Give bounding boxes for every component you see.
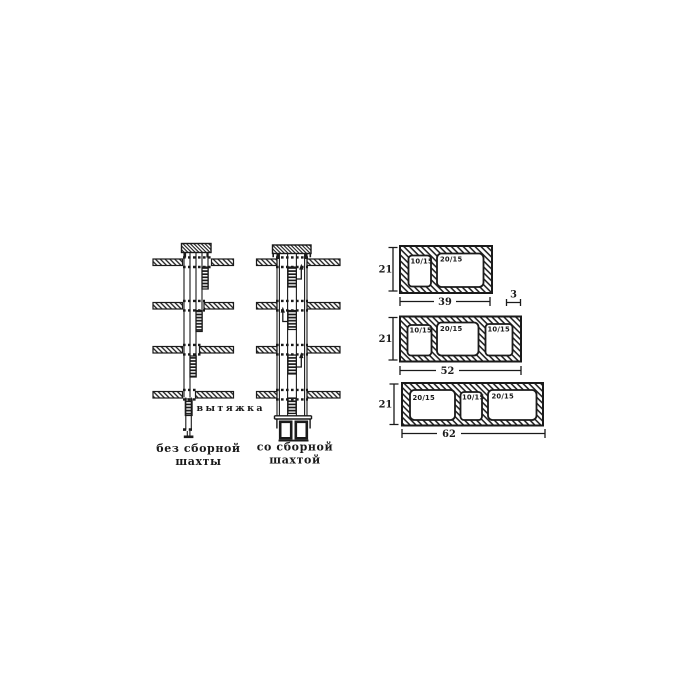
svg-text:21: 21 [379, 400, 393, 411]
branch-grille [288, 311, 296, 330]
block-section-52: 10/15 20/15 10/15 21 52 [379, 317, 521, 378]
shaft-base-block [275, 416, 312, 441]
branch-grille [288, 267, 296, 287]
intake-grille [202, 267, 208, 289]
block-section-39: 10/15 20/15 21 39 3 [379, 246, 521, 308]
svg-text:3: 3 [510, 290, 517, 301]
width-dimension: 62 [402, 429, 545, 440]
opening-size-label: 20/15 [440, 325, 462, 333]
intake-grille [190, 356, 196, 377]
individual-channels [183, 253, 212, 400]
block-sections: 10/15 20/15 21 39 3 10/15 20/15 10/15 [379, 246, 545, 440]
branch-grille [288, 398, 296, 414]
height-dimension: 21 [379, 248, 398, 292]
ventilation-shaft-figure: вытяжка без сборной шахты [0, 0, 700, 700]
flow-arrow [296, 269, 301, 279]
svg-text:21: 21 [379, 265, 393, 276]
opening-size-label: 20/15 [413, 394, 435, 402]
width-dimension: 52 [400, 366, 521, 377]
opening-size-label: 20/15 [492, 393, 514, 401]
left-caption-line1: без сборной [156, 442, 240, 455]
block-section-62: 20/15 10/15 20/15 21 62 [379, 383, 545, 440]
svg-text:39: 39 [438, 297, 452, 308]
opening-size-label: 10/15 [411, 258, 433, 266]
opening-size-label: 10/15 [410, 327, 432, 335]
svg-text:62: 62 [442, 429, 456, 440]
flow-arrow [296, 358, 301, 368]
shaft-without-collector-diagram: вытяжка без сборной шахты [153, 244, 265, 469]
branch-grille [288, 355, 296, 374]
right-caption-line2: шахтой [269, 454, 320, 467]
scanned-figure-page: вытяжка без сборной шахты [0, 0, 700, 700]
height-dimension: 21 [379, 318, 398, 361]
opening-size-label: 10/15 [462, 394, 484, 402]
svg-text:21: 21 [379, 334, 393, 345]
opening-size-label: 20/15 [440, 256, 462, 264]
exhaust-grille [185, 399, 192, 416]
opening-size-label: 10/15 [488, 326, 510, 334]
svg-text:52: 52 [441, 366, 455, 377]
left-caption-line2: шахты [175, 455, 221, 468]
right-caption-line1: со сборной [257, 441, 333, 454]
exhaust-label: вытяжка [197, 403, 265, 414]
shaft-with-collector-diagram: со сборной шахтой [257, 245, 341, 467]
exhaust-duct [183, 398, 194, 437]
wall-thickness-dimension: 3 [507, 290, 521, 307]
height-dimension: 21 [379, 384, 399, 425]
width-dimension: 39 [400, 297, 490, 308]
floor-slabs [257, 259, 341, 398]
flow-arrow [283, 312, 288, 322]
intake-grille [196, 311, 202, 332]
